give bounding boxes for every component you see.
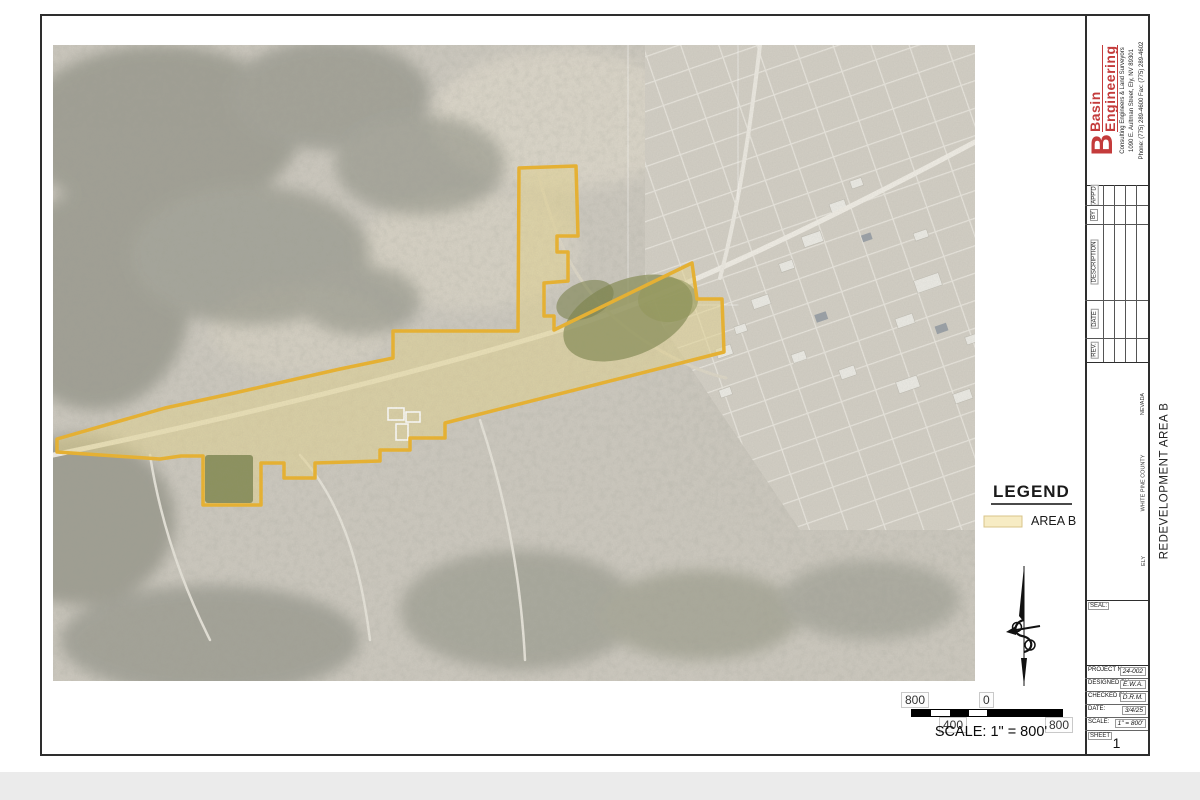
scale-label-800-left: 800: [901, 692, 929, 708]
firm-monogram: B: [1090, 134, 1116, 156]
checked-by-row: CHECKED BY: D.R.M.: [1085, 691, 1148, 705]
legend-area-b-label: AREA B: [1031, 514, 1076, 528]
title-county: WHITE PINE COUNTY: [1138, 443, 1149, 523]
rev-header-date: DATE: [1088, 300, 1101, 338]
sheet-number: 1: [1085, 735, 1148, 751]
legend-swatch: [983, 515, 1023, 528]
scale-bar: 800 0 400 800 SCALE: 1" = 800': [893, 692, 1093, 752]
seal-label: SEAL:: [1088, 602, 1109, 610]
drawing-title-block: REDEVELOPMENT AREA B CITY OF ELY CITY OF…: [1086, 362, 1138, 600]
legend-title: LEGEND: [991, 482, 1072, 505]
page-bottom-margin: [0, 772, 1200, 800]
designed-by-value: E.W.A.: [1120, 680, 1146, 689]
scale-row: SCALE: 1" = 800': [1085, 717, 1148, 731]
north-arrow-icon: [1004, 564, 1044, 688]
rev-header-rev: REV.: [1088, 338, 1101, 362]
checked-by-value: D.R.M.: [1120, 693, 1146, 702]
scale-caption: SCALE: 1" = 800': [921, 724, 1061, 740]
designed-by-row: DESIGNED BY: E.W.A.: [1085, 678, 1148, 692]
rev-header-appd: APP'D: [1088, 185, 1101, 205]
legend: LEGEND AREA B: [983, 482, 1093, 528]
rev-header-description: DESCRIPTION: [1088, 224, 1101, 300]
legend-item-area-b: AREA B: [983, 514, 1093, 528]
scale-label-0: 0: [979, 692, 994, 708]
title-city: ELY: [1138, 523, 1149, 598]
firm-name-bottom: Engineering: [1103, 45, 1118, 131]
rev-header-by: BY: [1088, 205, 1101, 224]
firm-tagline: Consulting Engineers & Land Surveyors: [1120, 47, 1128, 153]
project-no-row: PROJECT No.: 24-002: [1085, 665, 1148, 679]
date-row: DATE: 3/4/25: [1085, 704, 1148, 718]
firm-name-top: Basin: [1088, 45, 1103, 131]
firm-logo-block: B Basin Engineering Consulting Engineers…: [1086, 16, 1148, 185]
scale-bar-graphic: [911, 709, 1063, 717]
title-line1: REDEVELOPMENT AREA B: [1158, 403, 1170, 560]
drawing-sheet: B Basin Engineering Consulting Engineers…: [0, 0, 1200, 800]
project-no-value: 24-002: [1120, 667, 1146, 676]
firm-address: 1090 E. Aultman Street, Ely, NV 89301: [1129, 49, 1137, 152]
sheet-border: [40, 14, 1150, 756]
firm-phone-fax: Phone: (775) 289-4600 Fax: (775) 289-460…: [1139, 42, 1147, 160]
title-state: NEVADA: [1138, 365, 1149, 443]
scale-value: 1" = 800': [1115, 719, 1146, 728]
date-value: 3/4/25: [1122, 706, 1146, 715]
